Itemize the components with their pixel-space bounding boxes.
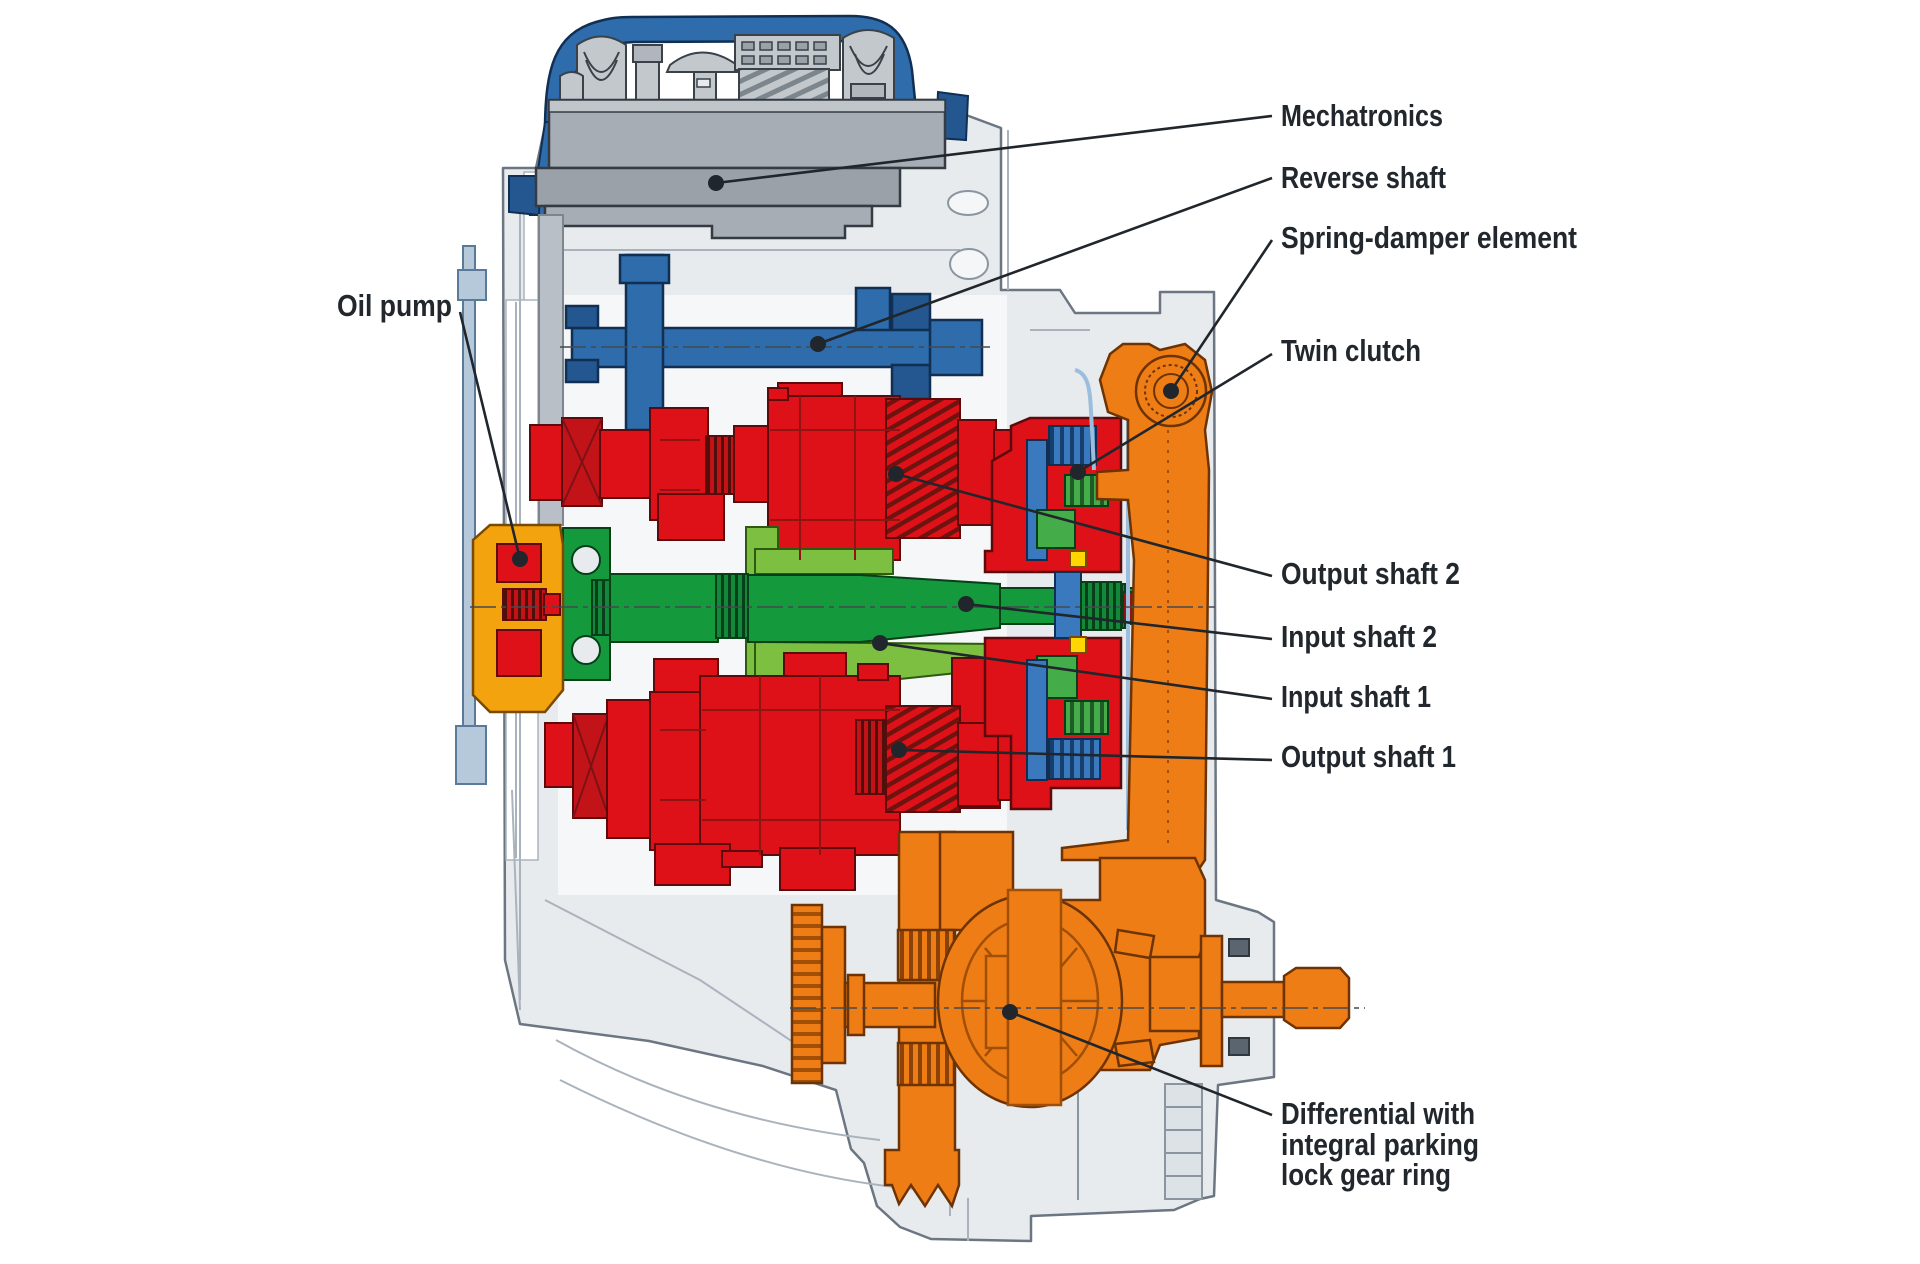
svg-text:Input shaft 2: Input shaft 2	[1281, 619, 1437, 654]
svg-text:Output shaft 1: Output shaft 1	[1281, 739, 1456, 774]
svg-text:Differential with: Differential with	[1281, 1096, 1475, 1131]
svg-text:Twin clutch: Twin clutch	[1281, 333, 1421, 368]
svg-text:Oil pump: Oil pump	[337, 288, 452, 323]
svg-text:Input shaft 1: Input shaft 1	[1281, 679, 1431, 714]
svg-text:Spring-damper element: Spring-damper element	[1281, 220, 1577, 255]
svg-text:Output shaft 2: Output shaft 2	[1281, 556, 1460, 591]
svg-text:Mechatronics: Mechatronics	[1281, 98, 1443, 133]
svg-text:lock gear ring: lock gear ring	[1281, 1157, 1451, 1192]
svg-text:Reverse shaft: Reverse shaft	[1281, 160, 1446, 195]
